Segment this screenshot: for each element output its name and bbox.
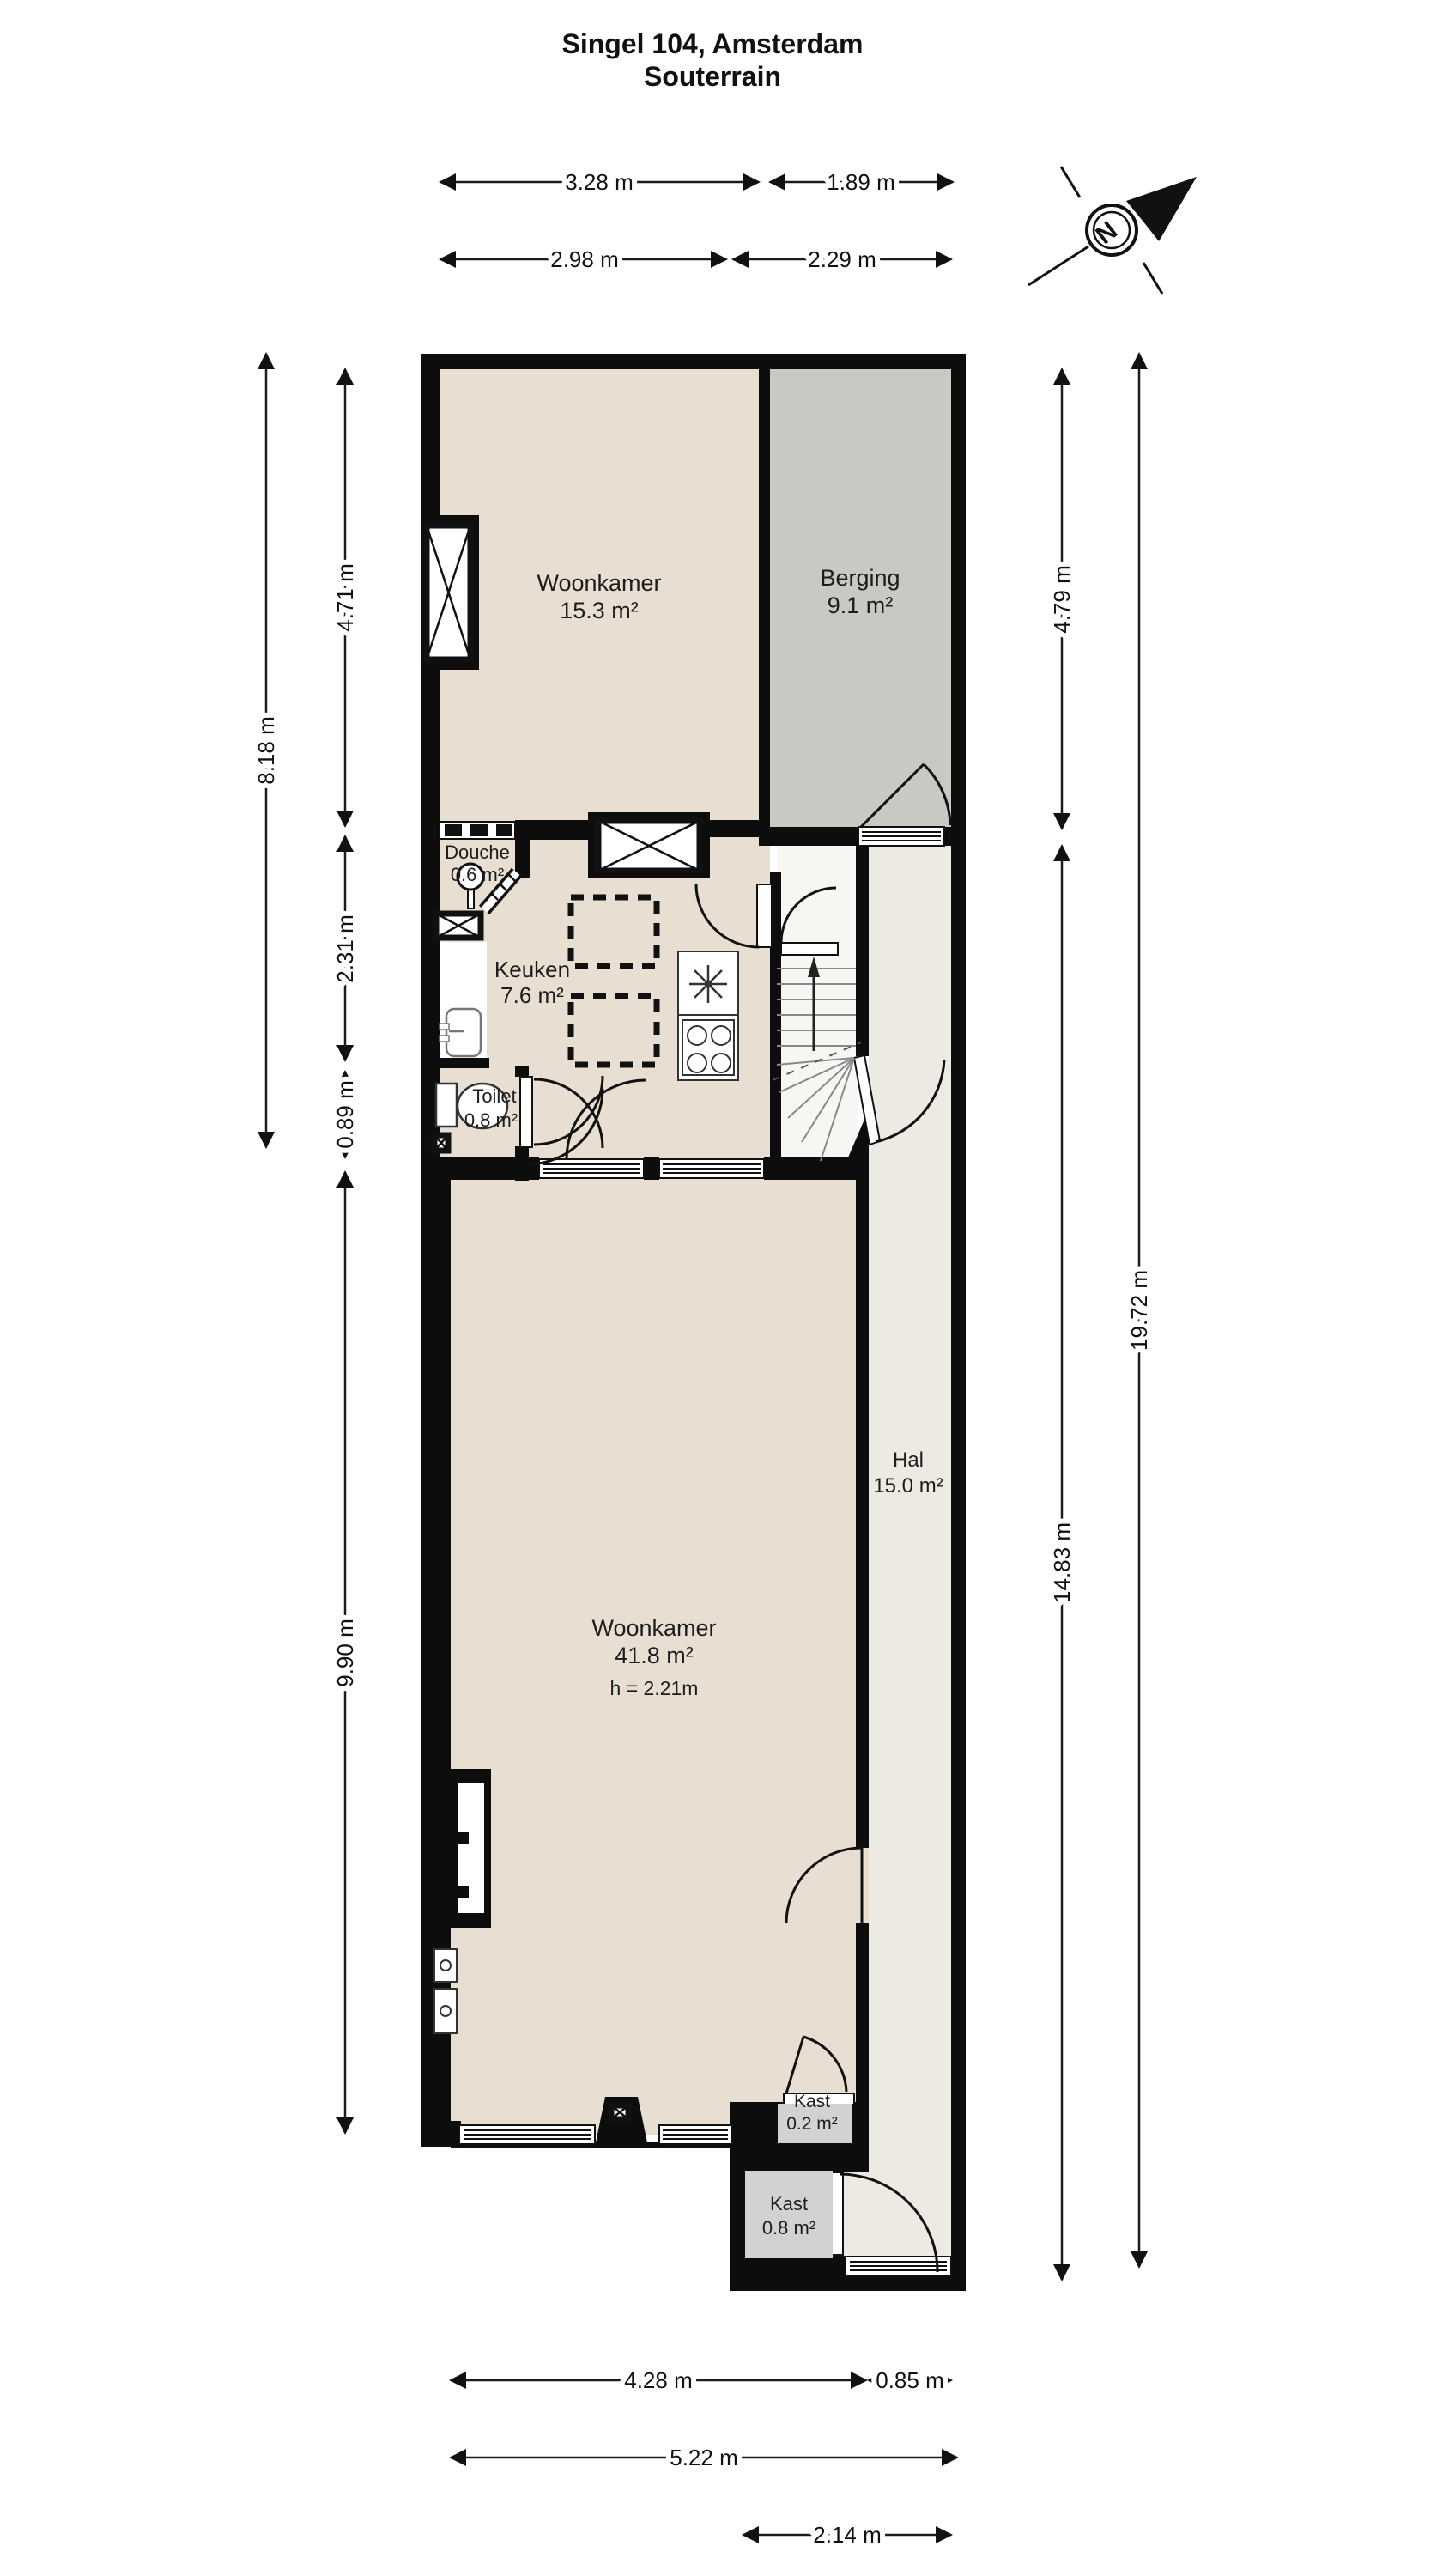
dim-left-2: 2.31 m (332, 914, 358, 983)
dim-top-2: 1.89 m (827, 169, 895, 195)
sink-icon (440, 942, 487, 1058)
page-title: Singel 104, Amsterdam Souterrain (562, 28, 864, 92)
dim-bottom-2: 0.85 m (876, 2367, 944, 2393)
dim-left-1: 4.71 m (332, 563, 358, 632)
dim-top-4: 2.29 m (808, 246, 876, 272)
area-keuken: 7.6 m² (500, 982, 564, 1008)
title-line2: Souterrain (644, 61, 781, 92)
label-woonkamer-boven: Woonkamer (537, 570, 661, 596)
radiator-icon-2 (434, 1989, 457, 2033)
facade-window-1 (459, 2125, 595, 2144)
dim-right-1: 4.79 m (1049, 565, 1075, 634)
shaft-icon-douche (436, 914, 481, 938)
area-hal: 15.0 m² (873, 1474, 943, 1498)
area-kast-klein: 0.2 m² (786, 2114, 838, 2134)
label-toilet: Toilet (472, 1085, 516, 1107)
floor-hal (869, 846, 951, 2275)
height-note: h = 2.21m (610, 1677, 699, 1699)
dim-left-outer: 8.18 m (253, 716, 279, 785)
dim-bottom-1: 4.28 m (624, 2367, 693, 2393)
title-line1: Singel 104, Amsterdam (562, 28, 864, 59)
floor-plan-canvas: Singel 104, Amsterdam Souterrain N (0, 0, 1449, 2576)
area-berging: 9.1 m² (828, 592, 894, 618)
dim-left-3: 0.89 m (332, 1080, 358, 1149)
dim-right-2: 14.83 m (1049, 1522, 1075, 1603)
area-douche: 0.6 m² (451, 864, 504, 885)
dim-bottom-4: 2.14 m (813, 2522, 882, 2548)
floor-kast-groot (745, 2171, 833, 2258)
dim-top-3: 2.98 m (550, 246, 619, 272)
label-kast-groot: Kast (770, 2193, 808, 2215)
dim-left-4: 9.90 m (332, 1619, 358, 1687)
label-kast-klein: Kast (794, 2092, 830, 2111)
label-berging: Berging (820, 565, 900, 591)
radiator-icon-1 (434, 1949, 457, 1982)
compass-icon: N (1028, 167, 1197, 294)
stair-top-door (781, 943, 838, 955)
stove-icon (678, 951, 738, 1080)
fireplace-niche (458, 1783, 484, 1913)
label-woonkamer-onder: Woonkamer (591, 1615, 716, 1641)
shaft-icon-toilet (434, 1135, 448, 1151)
sliding-door-icon (440, 822, 515, 839)
shaft-icon-bay (611, 2105, 628, 2119)
dim-top-1: 3.28 m (565, 169, 634, 195)
area-toilet: 0.8 m² (464, 1109, 518, 1131)
dim-bottom-3: 5.22 m (670, 2445, 738, 2470)
facade-window-2 (659, 2125, 731, 2144)
floor-stairwell (777, 846, 858, 1168)
label-douche: Douche (445, 841, 510, 863)
cupboard-icon (598, 821, 700, 871)
interior-window-1 (539, 1159, 644, 1178)
area-woonkamer-boven: 15.3 m² (560, 598, 639, 623)
dim-right-outer: 19.72 m (1126, 1270, 1152, 1351)
floors (440, 369, 951, 2275)
area-kast-groot: 0.8 m² (762, 2217, 815, 2239)
extractor-fan-icon (689, 965, 727, 1003)
keuken-door-leaf (757, 884, 772, 947)
interior-window-2 (659, 1159, 764, 1178)
toilet-door-leaf (520, 1077, 532, 1147)
label-hal: Hal (893, 1449, 924, 1472)
niche-window-icon (421, 515, 479, 670)
area-woonkamer-onder: 41.8 m² (615, 1643, 694, 1668)
kast-groot-door (831, 2172, 843, 2255)
label-keuken: Keuken (494, 957, 570, 982)
